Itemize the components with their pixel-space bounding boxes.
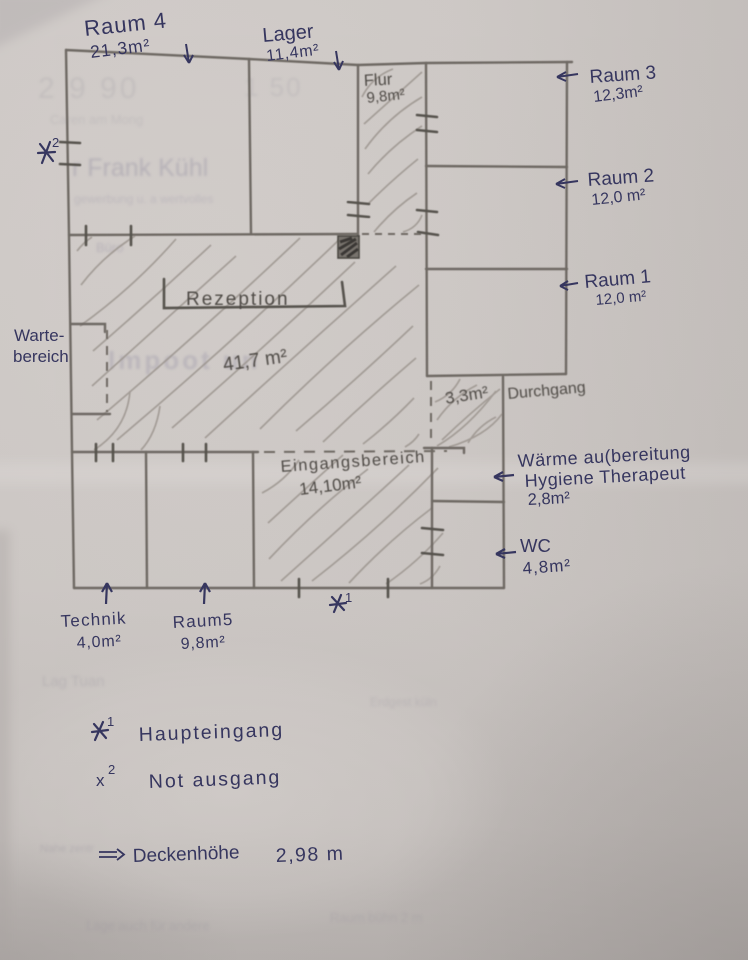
- svg-text:Lag Tuan: Lag Tuan: [42, 673, 105, 690]
- svg-text:Raum5: Raum5: [172, 610, 234, 632]
- svg-text:Nahe zentr: Nahe zentr: [40, 843, 94, 855]
- svg-text:Not ausgang: Not ausgang: [148, 766, 281, 793]
- svg-text:gewerbung u. a wertvolles: gewerbung u. a wertvolles: [74, 192, 213, 206]
- svg-text:2: 2: [52, 135, 59, 150]
- svg-text:WC: WC: [520, 535, 551, 556]
- svg-text:x: x: [96, 771, 105, 790]
- svg-text:bereich: bereich: [13, 347, 69, 366]
- svg-text:2,8m²: 2,8m²: [527, 489, 571, 509]
- svg-text:2,98 m: 2,98 m: [275, 843, 344, 867]
- svg-text:4,8m²: 4,8m²: [522, 556, 572, 578]
- svg-text:Technik: Technik: [60, 609, 127, 631]
- svg-text:Erdgest küln: Erdgest küln: [370, 695, 437, 709]
- svg-text:1: 1: [345, 590, 352, 605]
- svg-text:2 9 90: 2 9 90: [38, 72, 139, 105]
- svg-text:Deckenhöhe: Deckenhöhe: [132, 842, 239, 867]
- svg-text:r Frank Kühl: r Frank Kühl: [72, 154, 208, 182]
- svg-text:Caren am Mong: Caren am Mong: [50, 112, 143, 127]
- svg-text:4,0m²: 4,0m²: [76, 633, 122, 652]
- svg-text:Rezeption: Rezeption: [186, 289, 290, 310]
- svg-text:Raum bühn 2 m: Raum bühn 2 m: [330, 910, 423, 925]
- svg-text:Lage auch für andere: Lage auch für andere: [86, 918, 210, 933]
- svg-text:1 50: 1 50: [244, 72, 303, 102]
- svg-text:Warte-: Warte-: [14, 326, 64, 345]
- svg-text:2: 2: [108, 762, 115, 777]
- svg-text:9,8m²: 9,8m²: [180, 634, 226, 653]
- svg-text:1: 1: [107, 714, 114, 729]
